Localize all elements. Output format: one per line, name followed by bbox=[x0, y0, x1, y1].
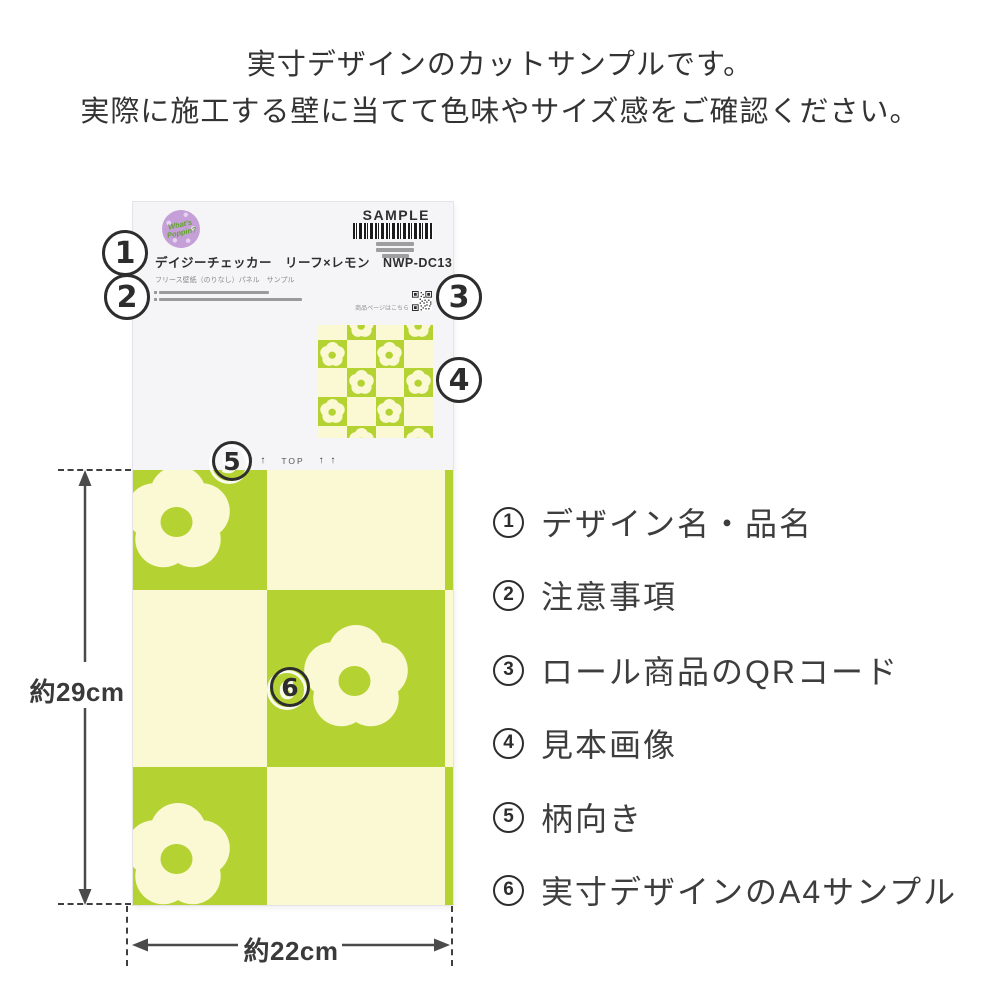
checker-cell-green bbox=[376, 340, 405, 369]
checker-cell-cream bbox=[347, 340, 376, 369]
legend-label: 実寸デザインのA4サンプル bbox=[541, 867, 957, 913]
up-arrows-icon: ↑ ↑ bbox=[319, 455, 338, 466]
daisy-flower bbox=[406, 428, 431, 438]
checker-cell-cream bbox=[376, 325, 405, 340]
checker-cell-cream bbox=[404, 397, 433, 426]
checker-cell-green bbox=[376, 397, 405, 426]
daisy-flower bbox=[349, 428, 374, 438]
legend-item-qr-code: 3 ロール商品のQRコード bbox=[493, 650, 899, 690]
legend-label: ロール商品のQRコード bbox=[541, 647, 899, 693]
thumbnail-grid bbox=[318, 325, 433, 438]
heading-line1: 実寸デザインのカットサンプルです。 bbox=[0, 42, 1000, 89]
legend-number: 1 bbox=[493, 507, 524, 538]
daisy-flower bbox=[377, 399, 402, 424]
checker-cell-cream bbox=[318, 325, 347, 340]
callout-marker-3: 3 bbox=[436, 274, 482, 320]
checker-cell-cream bbox=[404, 340, 433, 369]
callout-marker-1: 1 bbox=[102, 230, 148, 276]
daisy-flower bbox=[349, 325, 374, 338]
callout-marker-4: 4 bbox=[436, 357, 482, 403]
legend-label: デザイン名・品名 bbox=[541, 499, 813, 545]
legend-item-sample-image: 4 見本画像 bbox=[493, 723, 677, 763]
checker-cell-green bbox=[347, 325, 376, 340]
checker-cell-green bbox=[404, 368, 433, 397]
legend-item-design-name: 1 デザイン名・品名 bbox=[493, 502, 813, 542]
checker-cell-green bbox=[445, 767, 454, 905]
daisy-flower bbox=[133, 470, 231, 572]
legend-item-a4-sample: 6 実寸デザインのA4サンプル bbox=[493, 870, 957, 910]
note-bullet bbox=[154, 298, 157, 301]
daisy-flower bbox=[133, 803, 231, 905]
qr-caption: 商品ページはこちら bbox=[309, 303, 409, 312]
legend-number: 3 bbox=[493, 655, 524, 686]
legend-item-pattern-direction: 5 柄向き bbox=[493, 797, 643, 837]
product-subtitle: フリース壁紙（のりなし）パネル サンプル bbox=[155, 275, 294, 285]
checker-cell-green bbox=[347, 426, 376, 438]
daisy-flower bbox=[303, 625, 409, 731]
checker-cell-cream bbox=[318, 368, 347, 397]
legend-number: 6 bbox=[493, 875, 524, 906]
legend-label: 柄向き bbox=[541, 794, 643, 840]
checker-cell-cream bbox=[347, 397, 376, 426]
notes-placeholder-line bbox=[159, 291, 269, 295]
legend-item-notes: 2 注意事項 bbox=[493, 575, 677, 615]
legend-label: 注意事項 bbox=[541, 572, 677, 618]
checker-cell-green bbox=[445, 470, 454, 590]
pattern-direction-marking: ↑ ↑ TOP ↑ ↑ bbox=[133, 453, 453, 468]
sample-label: SAMPLE bbox=[363, 207, 430, 223]
checker-cell-cream bbox=[133, 590, 267, 768]
barcode-caption-placeholder bbox=[376, 242, 414, 246]
callout-marker-2: 2 bbox=[104, 274, 150, 320]
heading-line2: 実際に施工する壁に当てて色味やサイズ感をご確認ください。 bbox=[0, 89, 1000, 136]
page-heading: 実寸デザインのカットサンプルです。 実際に施工する壁に当てて色味やサイズ感をご確… bbox=[0, 42, 1000, 136]
checker-cell-green bbox=[318, 340, 347, 369]
product-title: デイジーチェッカー リーフ×レモン NWP-DC13 bbox=[155, 252, 452, 271]
notes-placeholder-line bbox=[159, 298, 302, 302]
checker-cell-cream bbox=[376, 368, 405, 397]
top-label: TOP bbox=[281, 456, 304, 466]
brand-badge-text: What's Poppin? bbox=[165, 218, 198, 240]
checker-cell-green bbox=[347, 368, 376, 397]
note-bullet bbox=[154, 291, 157, 294]
checker-cell-cream bbox=[267, 470, 445, 590]
checker-cell-cream bbox=[318, 426, 347, 438]
checker-cell-green bbox=[318, 397, 347, 426]
legend-label: 見本画像 bbox=[541, 720, 677, 766]
qr-code-icon bbox=[412, 291, 432, 311]
checker-cell-green bbox=[404, 325, 433, 340]
daisy-flower bbox=[320, 399, 345, 424]
checker-cell-cream bbox=[376, 426, 405, 438]
brand-badge: What's Poppin? bbox=[158, 206, 203, 251]
checker-cell-cream bbox=[445, 590, 454, 768]
callout-marker-5: 5 bbox=[212, 441, 252, 481]
daisy-flower bbox=[320, 342, 345, 367]
legend-number: 4 bbox=[493, 728, 524, 759]
checker-cell-green bbox=[133, 470, 267, 590]
daisy-flower bbox=[349, 370, 374, 395]
checker-cell-cream bbox=[267, 767, 445, 905]
width-dimension-label: 約22cm bbox=[241, 931, 341, 968]
checker-cell-green bbox=[133, 767, 267, 905]
page: 実寸デザインのカットサンプルです。 実際に施工する壁に当てて色味やサイズ感をご確… bbox=[0, 0, 1000, 1000]
sample-card: What's Poppin? SAMPLE デイジーチェッカー リーフ×レモン … bbox=[133, 202, 453, 905]
daisy-flower bbox=[406, 325, 431, 338]
barcode bbox=[353, 223, 433, 239]
legend-number: 5 bbox=[493, 802, 524, 833]
daisy-flower bbox=[406, 370, 431, 395]
height-dimension-label: 約29cm bbox=[27, 672, 127, 709]
daisy-flower bbox=[377, 342, 402, 367]
legend-number: 2 bbox=[493, 580, 524, 611]
checker-cell-green bbox=[404, 426, 433, 438]
callout-marker-6: 6 bbox=[270, 667, 310, 707]
pattern-thumbnail bbox=[318, 325, 433, 438]
